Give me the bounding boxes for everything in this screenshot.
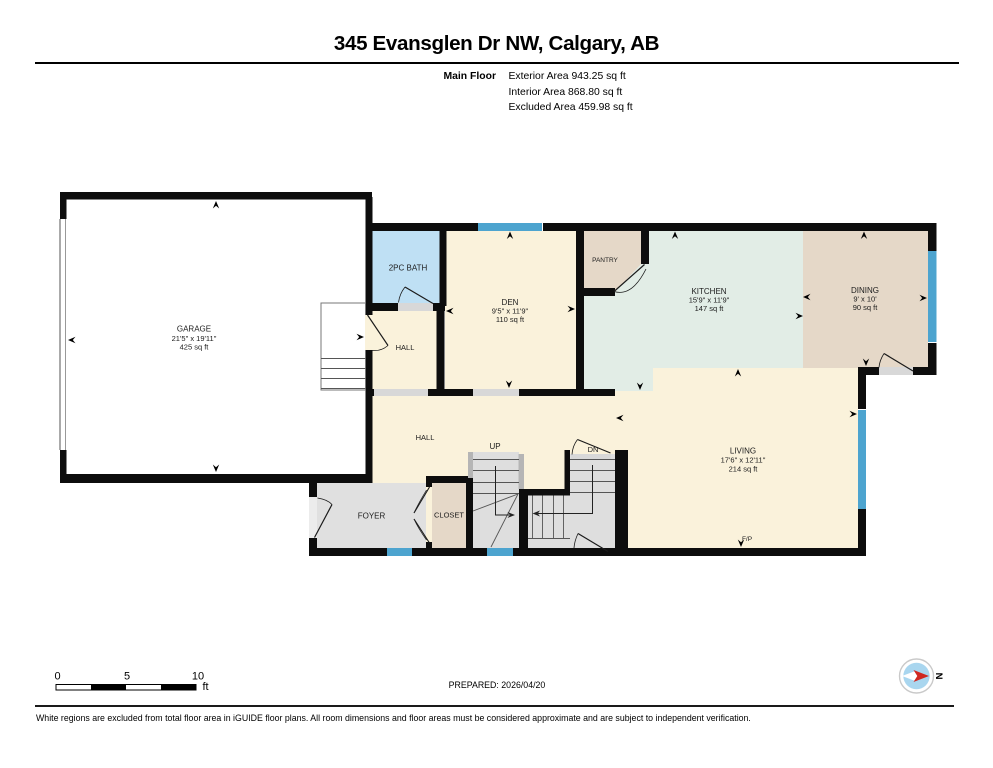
svg-text:DN: DN xyxy=(588,445,599,454)
svg-text:F/P: F/P xyxy=(742,536,752,543)
svg-text:110 sq ft: 110 sq ft xyxy=(496,315,525,324)
svg-text:2PC BATH: 2PC BATH xyxy=(389,264,428,273)
svg-text:0: 0 xyxy=(54,671,60,683)
svg-text:N: N xyxy=(933,673,944,680)
svg-text:PANTRY: PANTRY xyxy=(592,257,618,264)
svg-text:UP: UP xyxy=(489,442,500,451)
svg-text:CLOSET: CLOSET xyxy=(434,511,464,520)
svg-text:HALL: HALL xyxy=(396,343,415,352)
svg-text:147 sq ft: 147 sq ft xyxy=(695,304,725,313)
svg-text:425 sq ft: 425 sq ft xyxy=(180,343,210,352)
svg-text:HALL: HALL xyxy=(416,433,435,442)
svg-text:FOYER: FOYER xyxy=(358,512,386,521)
svg-text:LIVING: LIVING xyxy=(730,447,756,456)
svg-text:5: 5 xyxy=(124,671,130,683)
svg-text:90 sq ft: 90 sq ft xyxy=(853,303,879,312)
svg-text:214 sq ft: 214 sq ft xyxy=(729,465,759,474)
svg-text:17'6" x 12'11": 17'6" x 12'11" xyxy=(721,456,766,465)
svg-text:GARAGE: GARAGE xyxy=(177,325,211,334)
svg-text:PREPARED: 2026/04/20: PREPARED: 2026/04/20 xyxy=(449,680,546,690)
svg-text:ft: ft xyxy=(203,681,209,693)
